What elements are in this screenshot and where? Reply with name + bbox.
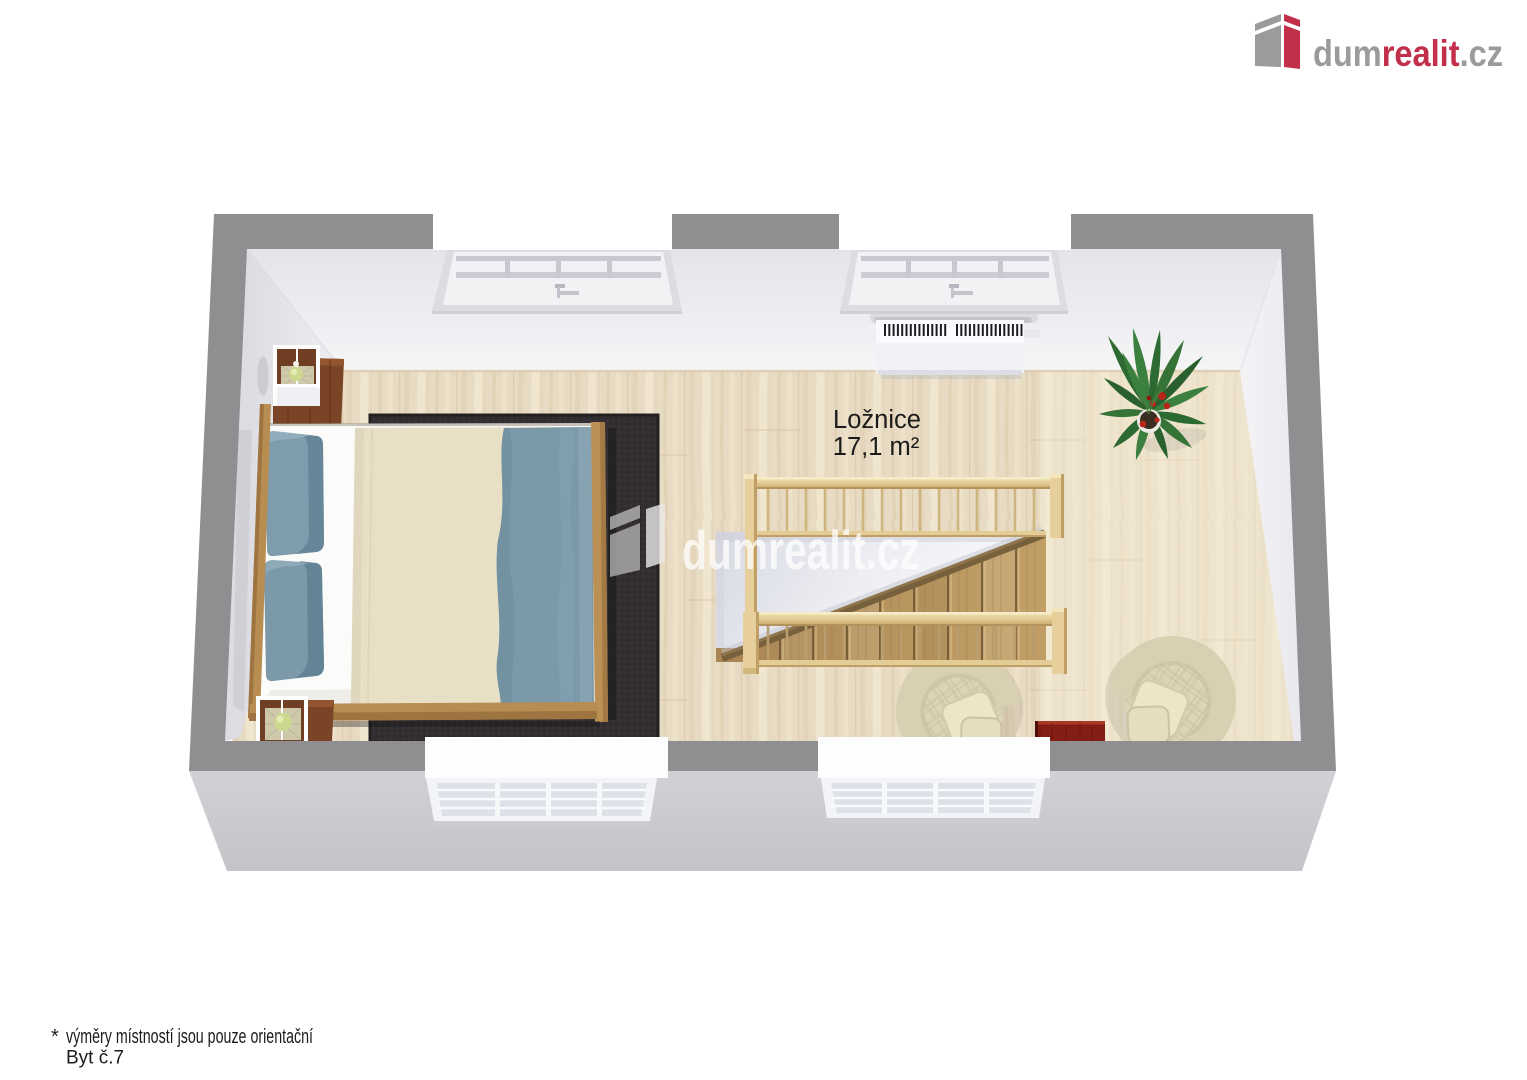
svg-text:Byt č.7: Byt č.7 xyxy=(66,1048,124,1069)
svg-text:dumrealit.cz: dumrealit.cz xyxy=(682,519,920,581)
svg-text:17,1 m²: 17,1 m² xyxy=(833,433,919,461)
svg-text:*: * xyxy=(51,1026,59,1048)
svg-text:Ložnice: Ložnice xyxy=(833,406,921,434)
svg-text:výměry místností jsou pouze or: výměry místností jsou pouze orientační xyxy=(66,1026,313,1048)
svg-text:dumrealit.cz: dumrealit.cz xyxy=(1313,33,1503,74)
